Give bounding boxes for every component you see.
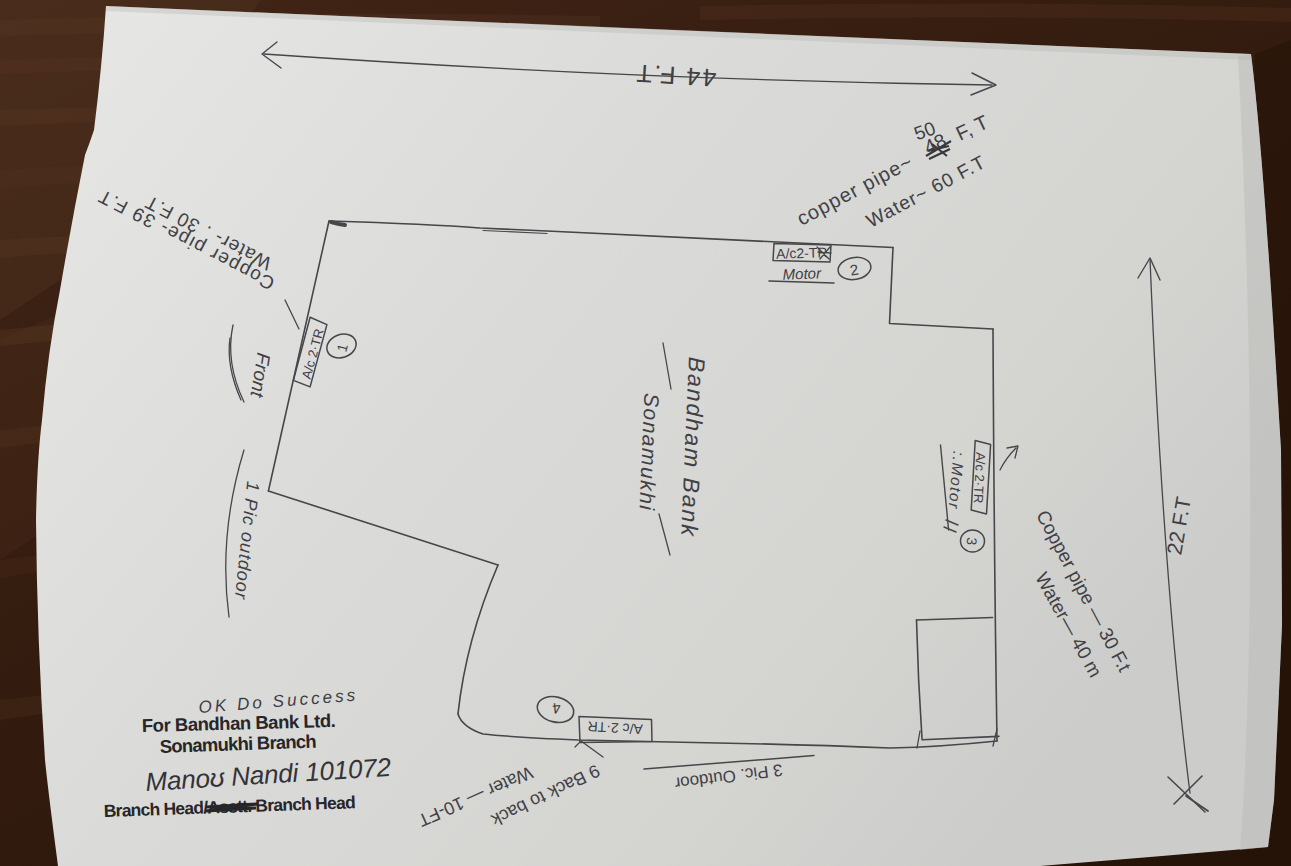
svg-text:A/c 2·TR: A/c 2·TR (587, 719, 643, 738)
svg-text:Motor: Motor (782, 264, 822, 282)
svg-text:44 F.T: 44 F.T (634, 60, 717, 93)
svg-text:A/c 2·TR: A/c 2·TR (971, 452, 989, 504)
svg-text:A/c2-TR: A/c2-TR (776, 244, 828, 261)
svg-text:3: 3 (964, 537, 981, 546)
svg-text:4: 4 (552, 700, 562, 718)
